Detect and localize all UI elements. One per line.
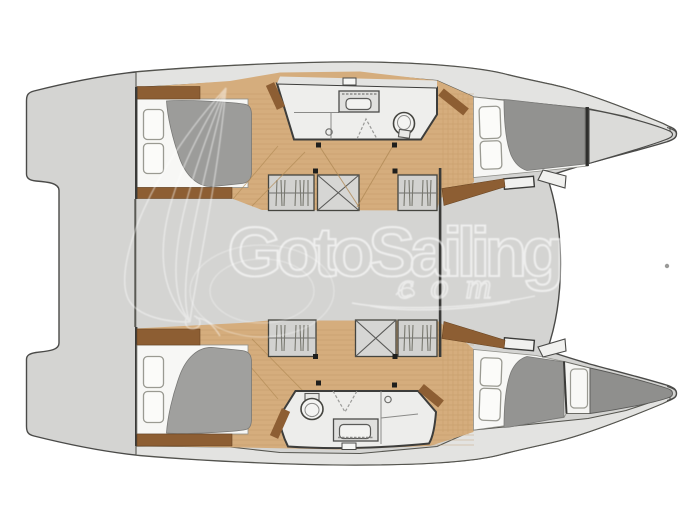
- svg-text:GotoSailing: GotoSailing: [228, 213, 565, 291]
- svg-text:com: com: [398, 266, 509, 306]
